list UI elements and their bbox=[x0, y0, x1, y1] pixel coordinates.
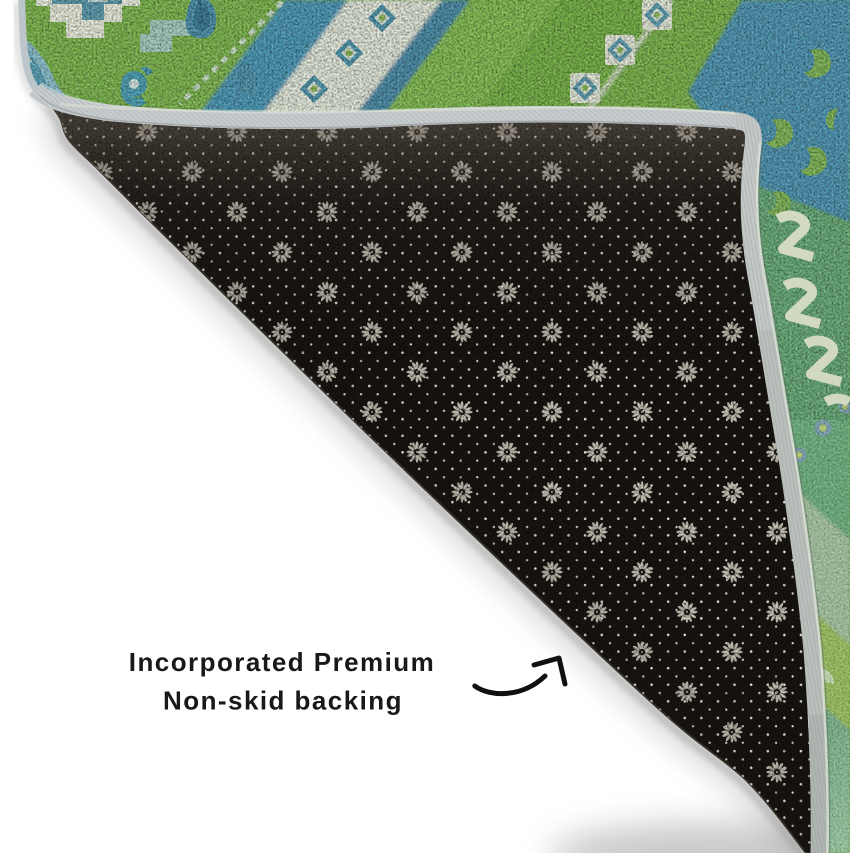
svg-text:Incorporated Premium: Incorporated Premium bbox=[129, 647, 435, 677]
svg-text:Non-skid backing: Non-skid backing bbox=[163, 686, 403, 716]
